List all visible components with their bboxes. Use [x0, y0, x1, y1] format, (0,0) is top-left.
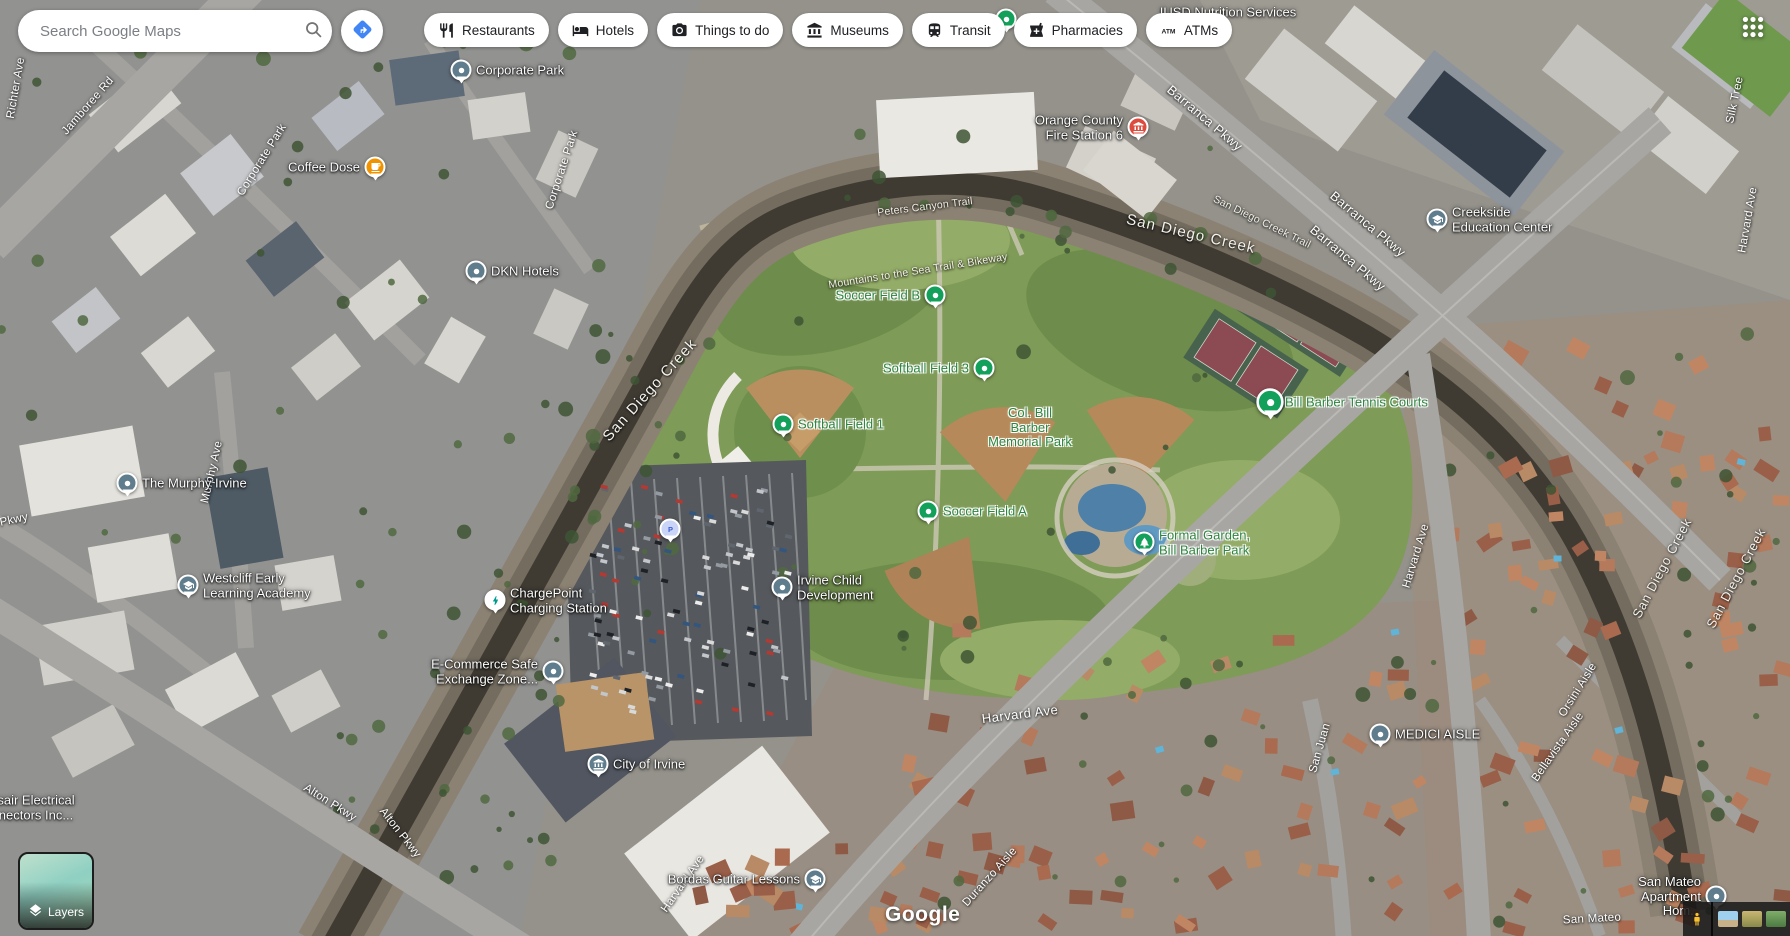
directions-icon	[350, 17, 375, 45]
search-box[interactable]	[18, 10, 332, 52]
city-of-irvine-label[interactable]: City of Irvine	[613, 758, 685, 773]
imagery-thumbnail-1[interactable]	[1718, 911, 1738, 927]
imagery-thumbnail-2[interactable]	[1742, 911, 1762, 927]
hotels-icon	[572, 22, 589, 39]
street-label-harvard-ave: Harvard Ave	[1736, 186, 1759, 253]
soccer-field-b-label[interactable]: Soccer Field B	[835, 289, 920, 304]
museums-icon	[806, 22, 823, 39]
street-label-san-juan: San Juan	[1307, 722, 1333, 774]
restaurants-icon	[438, 22, 455, 39]
street-label-san-diego-creek: San Diego Creek	[1125, 211, 1258, 257]
category-label: Things to do	[695, 23, 769, 38]
category-label: Pharmacies	[1052, 23, 1123, 38]
street-label-mountains-to-the-sea-trail-bikeway: Mountains to the Sea Trail & Bikeway	[828, 251, 1009, 291]
soccer-field-a-pin[interactable]	[918, 500, 939, 521]
medici-aisle-label[interactable]: MEDICI AISLE	[1395, 728, 1480, 743]
street-label-jamboree-rd: Jamboree Rd	[60, 75, 117, 137]
search-button[interactable]	[294, 12, 332, 50]
imagery-thumbnails	[1718, 911, 1786, 927]
street-label-alton-pkwy: Alton Pkwy	[301, 782, 358, 824]
bill-barber-tennis-courts-label[interactable]: Bill Barber Tennis Courts	[1285, 396, 1428, 411]
search-input[interactable]	[38, 22, 294, 41]
formal-garden-bill-barber-park-label[interactable]: Formal Garden, Bill Barber Park	[1159, 528, 1250, 557]
city-of-irvine-pin[interactable]	[588, 753, 609, 774]
softball-field-1-pin[interactable]	[773, 413, 794, 434]
chargepoint-charging-station-pin[interactable]	[485, 589, 506, 610]
transit-icon	[926, 22, 943, 39]
category-label: Hotels	[596, 23, 634, 38]
category-pill-transit[interactable]: Transit	[912, 13, 1005, 47]
svg-text:ATM: ATM	[1161, 28, 1175, 35]
bill-barber-tennis-courts-pin[interactable]	[1256, 388, 1283, 415]
chargepoint-charging-station-label[interactable]: ChargePoint Charging Station	[510, 586, 607, 615]
street-label-silk-tree: Silk Tree	[1724, 76, 1746, 125]
orange-county-fire-station-6-pin[interactable]	[1128, 116, 1149, 137]
street-label-duranzo-aisle: Duranzo Aisle	[960, 845, 1019, 909]
parking-pin[interactable]: P	[660, 518, 681, 539]
category-pill-things-to-do[interactable]: Things to do	[657, 13, 783, 47]
softball-field-3-label[interactable]: Softball Field 3	[883, 362, 969, 377]
softball-field-1-label[interactable]: Softball Field 1	[798, 418, 884, 433]
street-label-harvard-ave: Harvard Ave	[1401, 523, 1432, 590]
street-label-corporate-park: Corporate Park	[235, 122, 289, 198]
directions-button[interactable]	[341, 10, 383, 52]
category-pill-pharmacies[interactable]: Pharmacies	[1014, 13, 1137, 47]
col-bill-barber-memorial-park-label[interactable]: Col. Bill Barber Memorial Park	[988, 406, 1072, 450]
pharmacies-icon	[1028, 22, 1045, 39]
creekside-education-center-label[interactable]: Creekside Education Center	[1452, 205, 1552, 234]
the-murphy-irvine-pin[interactable]	[117, 472, 138, 493]
creekside-education-center-pin[interactable]	[1427, 208, 1448, 229]
soccer-field-a-label[interactable]: Soccer Field A	[943, 505, 1027, 520]
street-label-peters-canyon-trail: Peters Canyon Trail	[877, 195, 974, 219]
bordas-guitar-lessons-label[interactable]: Bordas Guitar Lessons	[668, 873, 800, 888]
imagery-thumbnail-3[interactable]	[1766, 911, 1786, 927]
medici-aisle-pin[interactable]	[1370, 723, 1391, 744]
street-label-richter-ave: Richter Ave	[5, 56, 28, 119]
category-pill-atms[interactable]: ATMATMs	[1146, 13, 1232, 47]
westcliff-early-learning-academy-label[interactable]: Westcliff Early Learning Academy	[203, 571, 311, 600]
layers-icon	[28, 903, 43, 921]
street-label-san-diego-creek: San Diego Creek	[599, 335, 700, 445]
westcliff-early-learning-academy-pin[interactable]	[178, 574, 199, 595]
coffee-dose-pin[interactable]	[365, 156, 386, 177]
search-icon	[303, 19, 324, 43]
orange-county-fire-station-6-label[interactable]: Orange County Fire Station 6	[1035, 113, 1123, 142]
category-label: Museums	[830, 23, 889, 38]
dkn-hotels-pin[interactable]	[466, 260, 487, 281]
bordas-guitar-lessons-pin[interactable]	[805, 868, 826, 889]
corporate-park-label[interactable]: Corporate Park	[476, 64, 564, 79]
category-pills: RestaurantsHotelsThings to doMuseumsTran…	[424, 13, 1232, 47]
street-label-alton-pkwy: Alton Pkwy	[377, 806, 423, 861]
street-label-barranca-pkwy: Barranca Pkwy	[1164, 82, 1246, 154]
electrical-connectors-label[interactable]: sair Electrical nectors Inc...	[0, 793, 75, 822]
bottom-right-panel	[1683, 902, 1790, 936]
soccer-field-b-pin[interactable]	[925, 284, 946, 305]
coffee-dose-label[interactable]: Coffee Dose	[288, 161, 360, 176]
category-label: ATMs	[1184, 23, 1218, 38]
layers-button[interactable]: Layers	[18, 852, 94, 930]
map-canvas[interactable]: Corporate ParkCoffee DoseDKN HotelsOrang…	[0, 0, 1790, 936]
street-label-corporate-park: Corporate Park	[544, 129, 581, 211]
street-label-san-mateo: San Mateo	[1563, 911, 1622, 926]
street-label-bellavista-aisle: Bellavista Aisle	[1530, 710, 1587, 784]
apps-grid-icon[interactable]	[1734, 11, 1768, 45]
dkn-hotels-label[interactable]: DKN Hotels	[491, 265, 559, 280]
the-murphy-irvine-label[interactable]: The Murphy Irvine	[142, 477, 247, 492]
map-labels-layer: Corporate ParkCoffee DoseDKN HotelsOrang…	[0, 0, 1790, 936]
category-pill-museums[interactable]: Museums	[792, 13, 903, 47]
atms-icon: ATM	[1160, 22, 1177, 39]
irvine-child-development-label[interactable]: Irvine Child Development	[797, 573, 874, 602]
things-to-do-icon	[671, 22, 688, 39]
corporate-park-pin[interactable]	[451, 59, 472, 80]
street-label-san-diego-creek: San Diego Creek	[1629, 515, 1694, 620]
panel-divider	[1711, 902, 1713, 936]
street-label-san-diego-creek: San Diego Creek	[1703, 525, 1768, 630]
layers-label: Layers	[48, 905, 84, 919]
street-label-harvard-ave: Harvard Ave	[981, 702, 1059, 726]
category-pill-hotels[interactable]: Hotels	[558, 13, 648, 47]
category-label: Transit	[950, 23, 991, 38]
pegman-icon[interactable]	[1683, 902, 1711, 936]
softball-field-3-pin[interactable]	[974, 357, 995, 378]
google-logo[interactable]: Google	[885, 903, 960, 927]
street-label-pkwy: Pkwy	[0, 511, 29, 529]
category-pill-restaurants[interactable]: Restaurants	[424, 13, 549, 47]
category-label: Restaurants	[462, 23, 535, 38]
irvine-child-development-pin[interactable]	[772, 576, 793, 597]
street-label-murphy-ave: Murphy Ave	[199, 440, 225, 505]
e-commerce-safe-exchange-zone-pin[interactable]	[543, 660, 564, 681]
formal-garden-bill-barber-park-pin[interactable]	[1134, 531, 1155, 552]
svg-text:P: P	[667, 525, 672, 534]
e-commerce-safe-exchange-zone-label[interactable]: E-Commerce Safe Exchange Zone...	[431, 657, 538, 686]
